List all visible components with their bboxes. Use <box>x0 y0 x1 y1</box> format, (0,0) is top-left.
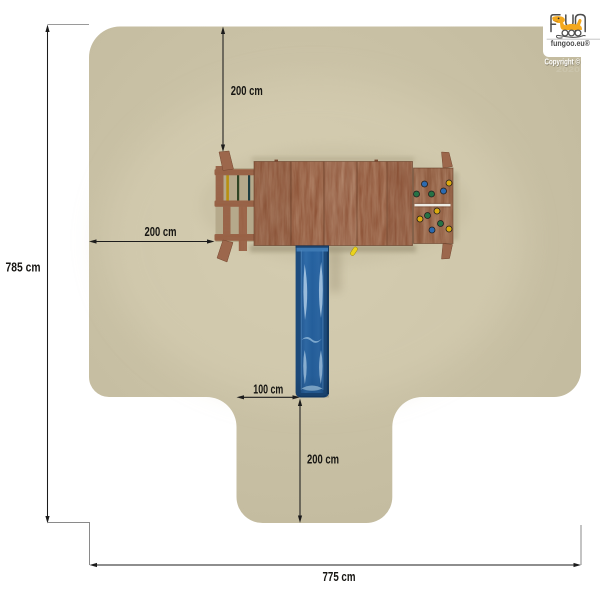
svg-text:200 cm: 200 cm <box>231 84 263 98</box>
svg-text:Copyright ©: Copyright © <box>545 58 581 67</box>
svg-text:100 cm: 100 cm <box>253 382 283 396</box>
svg-text:785 cm: 785 cm <box>6 261 41 275</box>
svg-text:775 cm: 775 cm <box>323 570 356 584</box>
svg-text:200 cm: 200 cm <box>145 225 177 239</box>
svg-text:fungoo.eu®: fungoo.eu® <box>551 39 590 48</box>
svg-text:200 cm: 200 cm <box>307 453 339 467</box>
svg-text:2020: 2020 <box>556 67 580 74</box>
